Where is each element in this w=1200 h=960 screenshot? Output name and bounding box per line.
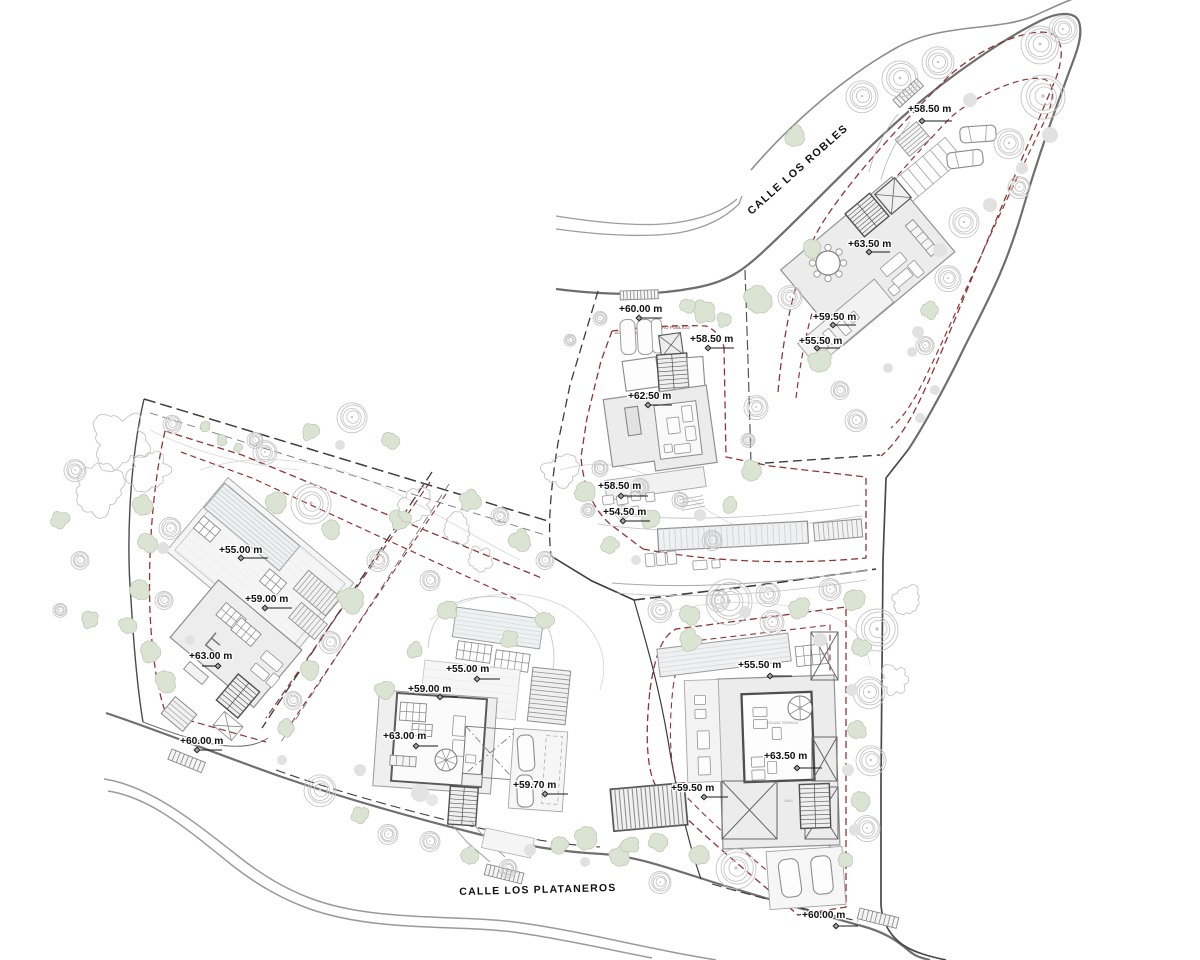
svg-text:+59.50 m: +59.50 m xyxy=(671,783,714,794)
svg-text:+55.00 m: +55.00 m xyxy=(446,664,489,675)
svg-text:SOLANA TERRAZA: SOLANA TERRAZA xyxy=(766,721,799,725)
svg-text:+59.00 m: +59.00 m xyxy=(408,684,451,695)
svg-text:+58.50 m: +58.50 m xyxy=(690,334,733,345)
svg-text:+63.50 m: +63.50 m xyxy=(764,751,807,762)
svg-text:+58.50 m: +58.50 m xyxy=(908,104,951,115)
svg-text:+59.50 m: +59.50 m xyxy=(813,312,856,323)
svg-text:+60.00 m: +60.00 m xyxy=(802,910,845,921)
svg-text:HALL: HALL xyxy=(785,799,794,803)
svg-text:+63.50 m: +63.50 m xyxy=(848,239,891,250)
svg-text:+55.50 m: +55.50 m xyxy=(799,336,842,347)
svg-text:+54.50 m: +54.50 m xyxy=(603,507,646,518)
svg-text:+59.70 m: +59.70 m xyxy=(513,780,556,791)
svg-text:+60.00 m: +60.00 m xyxy=(180,736,223,747)
svg-text:+58.50 m: +58.50 m xyxy=(598,481,641,492)
svg-text:+55.50 m: +55.50 m xyxy=(738,660,781,671)
svg-text:+63.00 m: +63.00 m xyxy=(189,651,232,662)
svg-text:+63.00 m: +63.00 m xyxy=(383,731,426,742)
svg-text:+55.00 m: +55.00 m xyxy=(219,545,262,556)
svg-text:+62.50 m: +62.50 m xyxy=(628,391,671,402)
svg-text:+60.00 m: +60.00 m xyxy=(619,304,662,315)
svg-text:+59.00 m: +59.00 m xyxy=(245,594,288,605)
